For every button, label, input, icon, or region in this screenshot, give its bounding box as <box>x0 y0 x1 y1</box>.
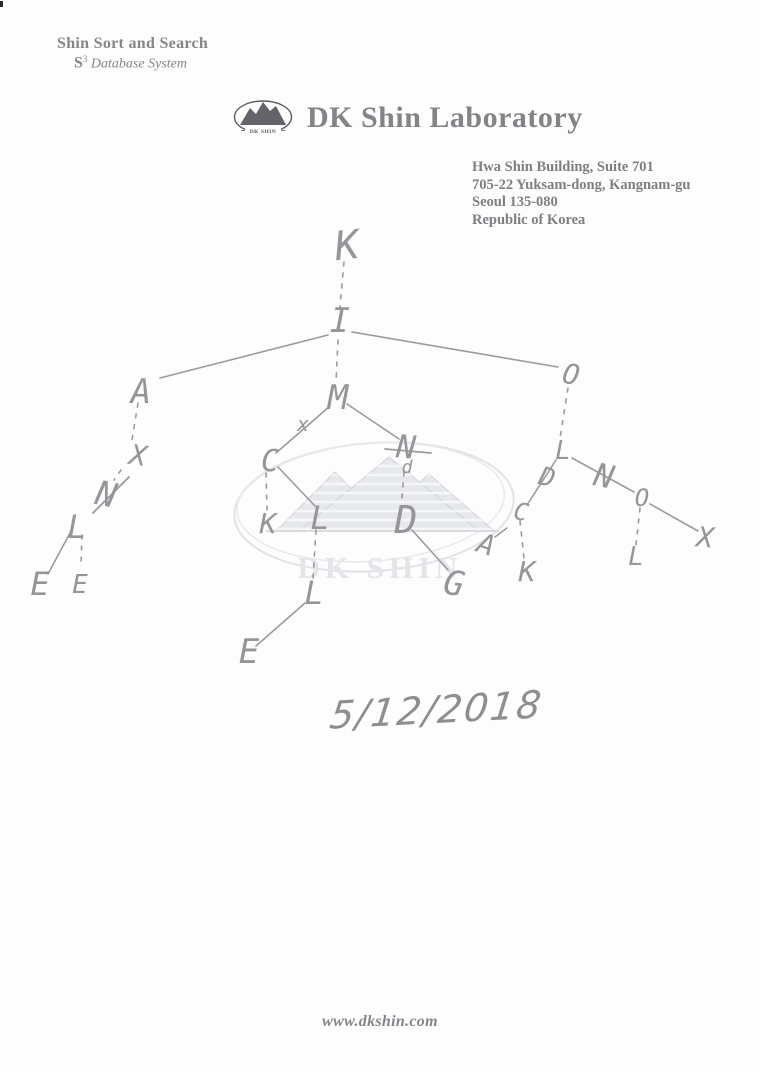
tree-node-x: x <box>297 414 309 434</box>
website-url: www.dkshin.com <box>0 1013 760 1031</box>
tree-node-l: L <box>67 511 86 543</box>
tree-node-k: K <box>519 558 536 586</box>
tree-node-g: G <box>441 565 467 602</box>
tree-node-l: L <box>304 577 323 609</box>
tree-node-x: X <box>128 441 149 471</box>
tree-node-n: N <box>92 476 119 514</box>
tree-node-i: I <box>330 304 350 338</box>
tree-node-e: E <box>239 635 259 669</box>
tree-node-x: X <box>695 523 714 552</box>
tree-node-o: O <box>560 360 581 391</box>
tree-node-d: D <box>536 463 558 492</box>
tree-node-m: M <box>328 381 348 415</box>
tree-node-c: C <box>261 447 279 477</box>
scanned-page: Shin Sort and Search S3 Database System … <box>0 0 760 1071</box>
tree-node-k: K <box>260 510 277 538</box>
tree-node-e: E <box>72 572 88 598</box>
tree-node-e: E <box>30 568 49 600</box>
tree-node-a: A <box>474 529 499 561</box>
tree-node-l: L <box>310 502 329 534</box>
tree-node-k: K <box>333 225 361 267</box>
tree-node-d: D <box>395 501 418 539</box>
tree-node-d: d <box>402 459 413 477</box>
tree-node-c: C <box>512 499 530 525</box>
tree-node-l: L <box>628 544 644 570</box>
tree-node-a: A <box>131 375 151 409</box>
tree-node-n: N <box>591 458 616 493</box>
tree-node-o: O <box>635 486 649 510</box>
tree-nodes-layer: KIAXNLEEMxCKLLENdDGACKOLDNOLX <box>0 0 760 1071</box>
tree-node-l: L <box>555 438 571 464</box>
